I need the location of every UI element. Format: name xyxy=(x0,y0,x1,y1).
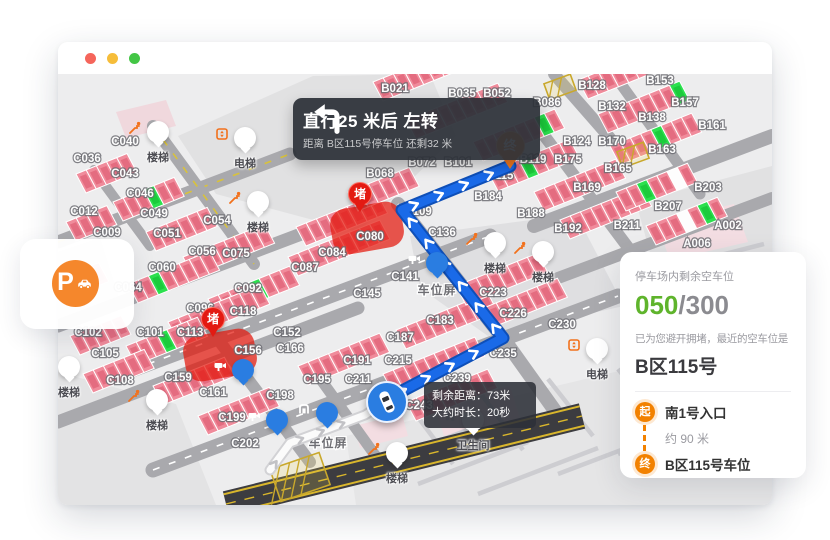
spot-label-C230: C230 xyxy=(548,319,576,331)
spot-label-C092: C092 xyxy=(234,283,262,295)
spot-label-B138: B138 xyxy=(638,112,666,124)
spot-label-C166: C166 xyxy=(276,343,304,355)
start-label: 南1号入口 xyxy=(665,402,727,422)
route-distance: 约 90 米 xyxy=(665,430,709,447)
spot-label-C161: C161 xyxy=(199,387,227,399)
route-start-row: 起 南1号入口 xyxy=(635,402,791,422)
assigned-spot-name: B区115号 xyxy=(635,352,791,379)
panel-divider xyxy=(635,391,791,392)
start-badge: 起 xyxy=(635,402,655,422)
camera-marker[interactable] xyxy=(407,252,467,277)
stairs-marker[interactable]: 楼梯 xyxy=(367,442,427,486)
spot-label-C118: C118 xyxy=(230,306,257,318)
congestion-pin[interactable]: 堵 xyxy=(345,182,375,217)
maximize-window-button[interactable] xyxy=(129,53,140,64)
parking-info-panel: 停车场内剩余空车位 050/300 已为您避开拥堵，最近的空车位是 B区115号… xyxy=(620,252,806,478)
congestion-pin[interactable]: 堵 xyxy=(198,307,228,342)
available-count: 050 xyxy=(635,290,678,320)
direction-detail: 距离 B区115号停车位 还剩32 米 xyxy=(303,136,452,151)
marker-label: 楼梯 xyxy=(228,219,288,235)
spot-label-C036: C036 xyxy=(73,153,101,165)
marker-label: 楼梯 xyxy=(128,149,188,165)
spot-label-C108: C108 xyxy=(106,375,134,387)
spot-label-C046: C046 xyxy=(126,188,154,200)
spot-label-A002: A002 xyxy=(714,220,742,232)
remaining-distance: 剩余距离：73米 xyxy=(432,388,528,405)
spot-label-B165: B165 xyxy=(604,163,632,175)
car-icon xyxy=(371,386,403,418)
spot-label-C049: C049 xyxy=(140,208,168,220)
avoid-congestion-text: 已为您避开拥堵，最近的空车位是 xyxy=(635,331,791,346)
route-connector: 约 90 米 xyxy=(643,425,791,451)
spot-label-B175: B175 xyxy=(554,154,582,166)
area-label: 车位屏 xyxy=(417,282,456,297)
spot-label-C060: C060 xyxy=(148,262,176,274)
spot-label-C145: C145 xyxy=(353,288,381,300)
spot-label-B170: B170 xyxy=(598,136,626,148)
stairs-marker[interactable]: 楼梯 xyxy=(228,191,288,235)
destination-pin-tail xyxy=(502,157,518,177)
marker-label: 卫生间 xyxy=(443,437,503,453)
count-separator: / xyxy=(678,290,685,320)
spot-label-B184: B184 xyxy=(474,191,502,203)
spot-label-B153: B153 xyxy=(646,75,674,87)
spot-label-C199: C199 xyxy=(218,412,246,424)
spot-label-B207: B207 xyxy=(654,201,682,213)
spot-label-B128: B128 xyxy=(578,80,606,92)
spot-label-B169: B169 xyxy=(573,182,601,194)
marker-label: 楼梯 xyxy=(58,384,99,400)
gate-marker[interactable] xyxy=(297,402,357,427)
spot-label-C198: C198 xyxy=(266,390,294,402)
spot-label-C183: C183 xyxy=(426,315,454,327)
spot-label-B203: B203 xyxy=(694,182,722,194)
space-count: 050/300 xyxy=(635,290,791,321)
spot-label-C187: C187 xyxy=(386,332,414,344)
marker-label: 电梯 xyxy=(215,155,275,171)
spot-label-B132: B132 xyxy=(598,101,626,113)
spot-label-C156: C156 xyxy=(234,345,262,357)
parking-fab-letter: P xyxy=(57,268,74,297)
close-window-button[interactable] xyxy=(85,53,96,64)
marker-label: 楼梯 xyxy=(367,470,427,486)
spot-label-C009: C009 xyxy=(93,227,121,239)
spot-label-C051: C051 xyxy=(153,228,181,240)
elevator-marker[interactable]: 电梯 xyxy=(215,127,275,171)
car-small-icon xyxy=(75,274,94,293)
camera-marker[interactable] xyxy=(213,359,273,384)
spot-label-C012: C012 xyxy=(70,206,98,218)
spot-label-B192: B192 xyxy=(554,223,582,235)
spot-label-C136: C136 xyxy=(428,227,456,239)
spot-label-C159: C159 xyxy=(164,372,192,384)
stairs-marker[interactable]: 楼梯 xyxy=(127,389,187,433)
remaining-time: 大约时长：20秒 xyxy=(432,405,528,422)
parking-fab-circle[interactable]: P xyxy=(52,260,99,307)
spot-label-C215: C215 xyxy=(384,355,412,367)
spot-label-C226: C226 xyxy=(499,308,527,320)
congestion-pin-tail xyxy=(208,329,218,342)
minimize-window-button[interactable] xyxy=(107,53,118,64)
spot-label-C087: C087 xyxy=(291,262,319,274)
marker-label: 楼梯 xyxy=(127,417,187,433)
parking-fab-card[interactable]: P xyxy=(20,239,134,329)
spot-label-B211: B211 xyxy=(614,220,641,232)
spot-label-B124: B124 xyxy=(563,136,591,148)
spot-label-B161: B161 xyxy=(698,120,726,132)
route-end-row: 终 B区115号车位 xyxy=(635,454,791,474)
spot-label-B021: B021 xyxy=(381,83,409,95)
congestion-pin-label: 堵 xyxy=(201,307,225,331)
marker-label: 电梯 xyxy=(567,366,627,382)
spot-label-B163: B163 xyxy=(648,144,676,156)
spot-label-C202: C202 xyxy=(231,438,259,450)
elevator-marker[interactable]: 电梯 xyxy=(567,338,627,382)
spot-label-C191: C191 xyxy=(343,355,371,367)
spot-label-B188: B188 xyxy=(517,208,545,220)
spot-label-C223: C223 xyxy=(479,287,507,299)
end-label: B区115号车位 xyxy=(665,454,751,474)
spot-label-C084: C084 xyxy=(318,247,346,259)
spot-label-B068: B068 xyxy=(366,168,394,180)
spot-label-C043: C043 xyxy=(111,168,139,180)
spot-label-A006: A006 xyxy=(683,238,711,250)
spot-label-C080: C080 xyxy=(356,231,384,243)
eta-tooltip: 剩余距离：73米 大约时长：20秒 xyxy=(424,382,536,428)
congestion-pin-tail xyxy=(355,204,365,217)
total-count: 300 xyxy=(686,290,729,320)
spot-label-C075: C075 xyxy=(222,248,250,260)
stairs-marker[interactable]: 楼梯 xyxy=(58,356,99,400)
congestion-pin-label: 堵 xyxy=(348,182,372,206)
spot-label-B157: B157 xyxy=(671,97,699,109)
stairs-marker[interactable]: 楼梯 xyxy=(128,121,188,165)
window-titlebar xyxy=(58,42,772,75)
spot-label-C195: C195 xyxy=(303,374,331,386)
turn-left-icon xyxy=(307,98,347,138)
end-badge: 终 xyxy=(635,454,655,474)
spot-label-C056: C056 xyxy=(188,246,216,258)
page: C040C036C043C046C012C049C009C051C054C056… xyxy=(0,0,830,540)
spot-label-C211: C211 xyxy=(345,374,372,386)
remaining-spaces-label: 停车场内剩余空车位 xyxy=(635,268,791,284)
spot-label-C101: C101 xyxy=(136,327,164,339)
stairs-marker[interactable]: 楼梯 xyxy=(513,241,573,285)
marker-label: 楼梯 xyxy=(513,269,573,285)
car-position-marker[interactable] xyxy=(366,381,408,423)
direction-banner: 直行25 米后 左转 距离 B区115号停车位 还剩32 米 xyxy=(293,98,540,160)
spot-label-C152: C152 xyxy=(273,327,301,339)
